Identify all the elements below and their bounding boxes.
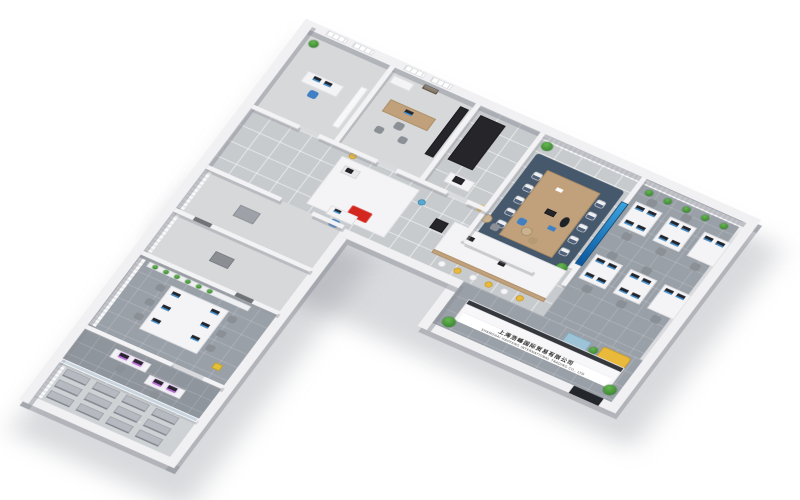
building-plan: 上海浩峰国际贸易有限公司 SHANGHAI HAOFENG INTERNATIO… — [28, 30, 746, 500]
floorplan-render-canvas: 上海浩峰国际贸易有限公司 SHANGHAI HAOFENG INTERNATIO… — [0, 0, 800, 500]
